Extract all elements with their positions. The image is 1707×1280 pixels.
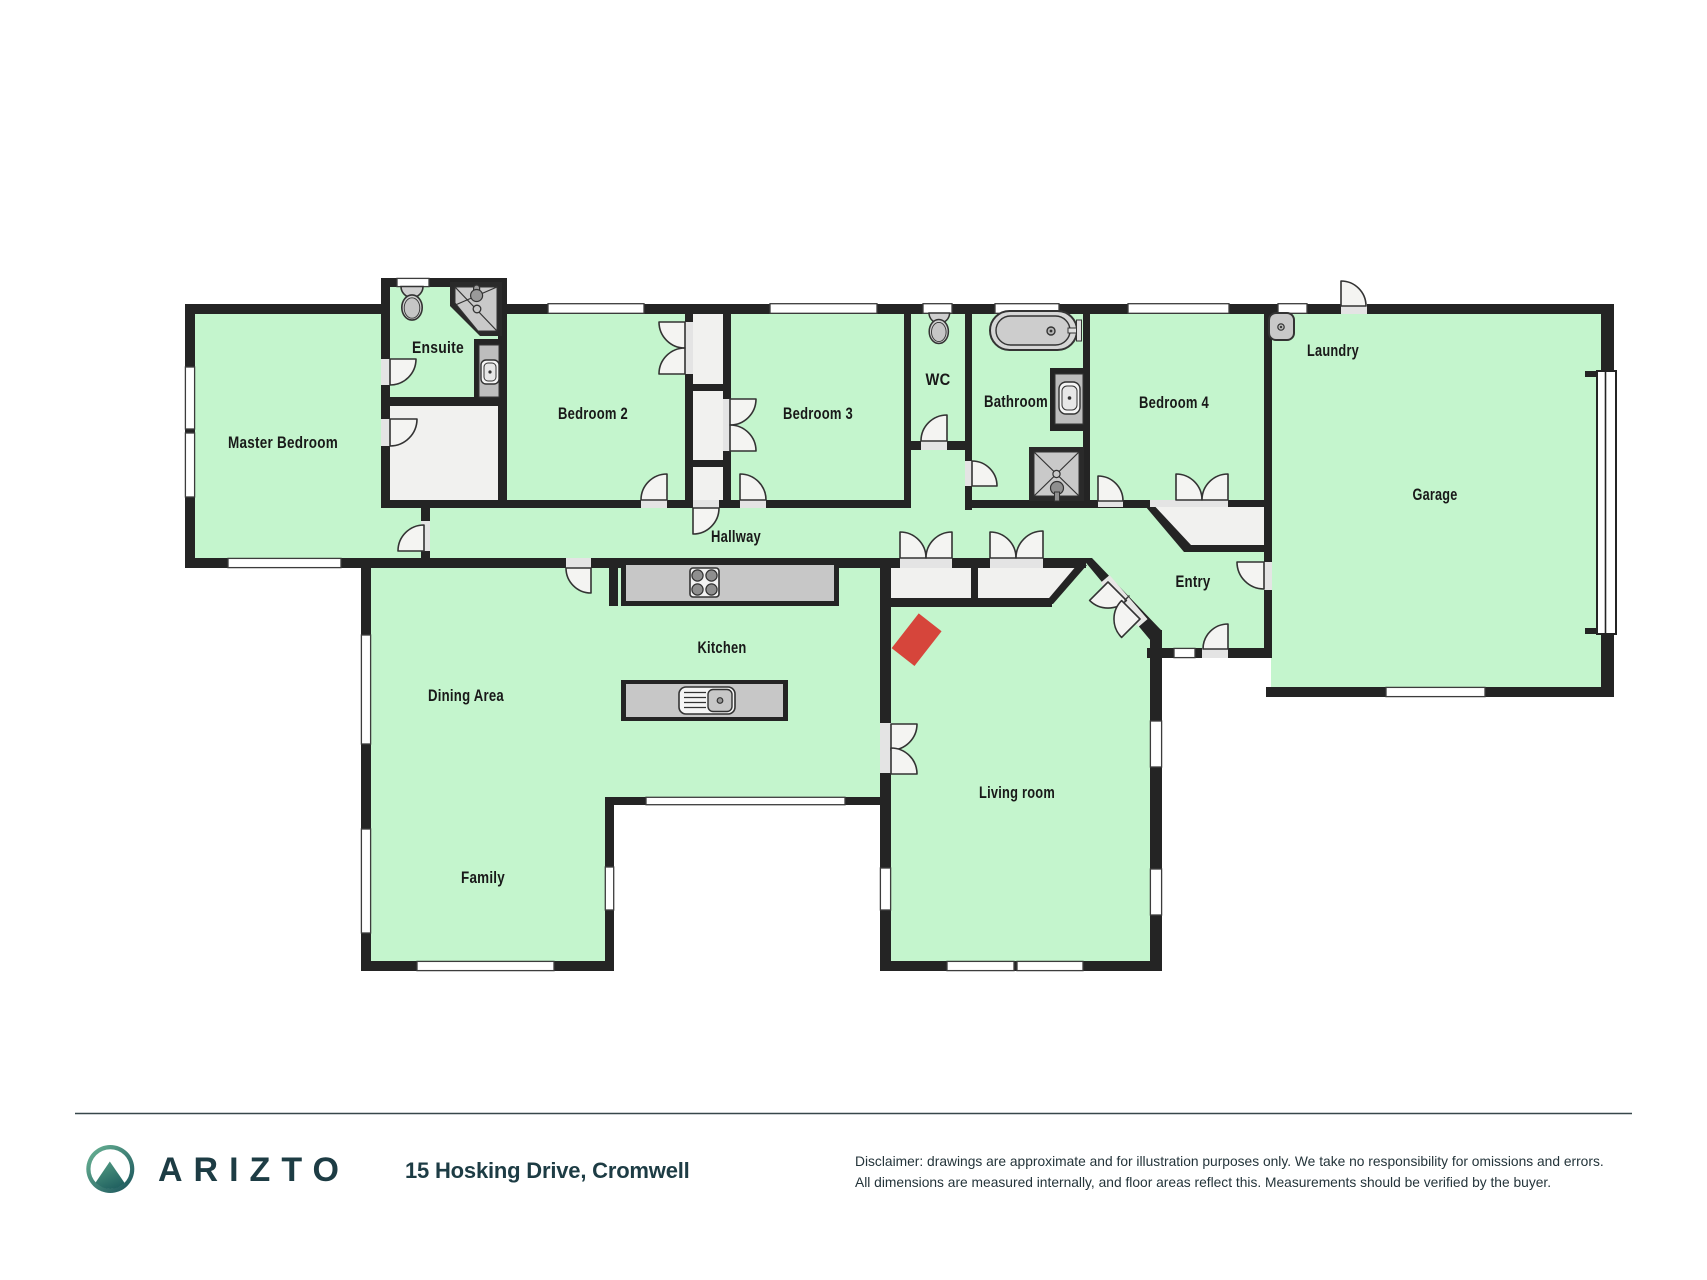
svg-text:Bathroom: Bathroom — [984, 393, 1048, 411]
svg-text:Ensuite: Ensuite — [412, 339, 464, 357]
svg-text:Kitchen: Kitchen — [698, 639, 747, 657]
svg-text:Laundry: Laundry — [1307, 342, 1359, 360]
svg-text:Master Bedroom: Master Bedroom — [228, 434, 338, 452]
svg-text:Bedroom 4: Bedroom 4 — [1139, 394, 1209, 412]
svg-text:Entry: Entry — [1176, 573, 1211, 591]
svg-text:Bedroom 2: Bedroom 2 — [558, 405, 628, 423]
svg-text:ARIZTO: ARIZTO — [158, 1151, 350, 1189]
svg-text:Dining Area: Dining Area — [428, 687, 504, 705]
svg-text:Family: Family — [461, 869, 505, 887]
svg-text:Living room: Living room — [979, 784, 1055, 802]
svg-text:All dimensions are measured in: All dimensions are measured internally, … — [855, 1175, 1551, 1190]
svg-text:Garage: Garage — [1413, 486, 1458, 504]
svg-text:WC: WC — [926, 371, 951, 389]
svg-text:Bedroom 3: Bedroom 3 — [783, 405, 853, 423]
svg-text:Hallway: Hallway — [711, 528, 761, 546]
svg-text:15 Hosking Drive, Cromwell: 15 Hosking Drive, Cromwell — [405, 1158, 690, 1183]
svg-text:Disclaimer: drawings are appro: Disclaimer: drawings are approximate and… — [855, 1154, 1604, 1169]
